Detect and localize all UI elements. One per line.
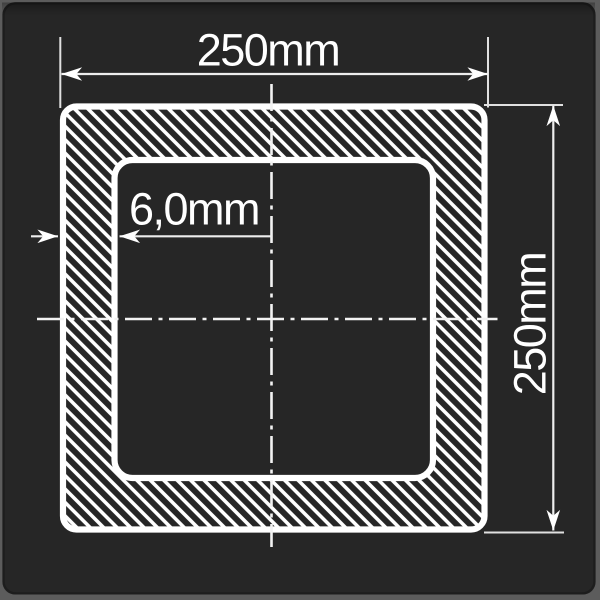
svg-text:6,0mm: 6,0mm: [129, 184, 259, 235]
svg-text:250mm: 250mm: [505, 253, 556, 396]
svg-text:250mm: 250mm: [197, 25, 340, 76]
